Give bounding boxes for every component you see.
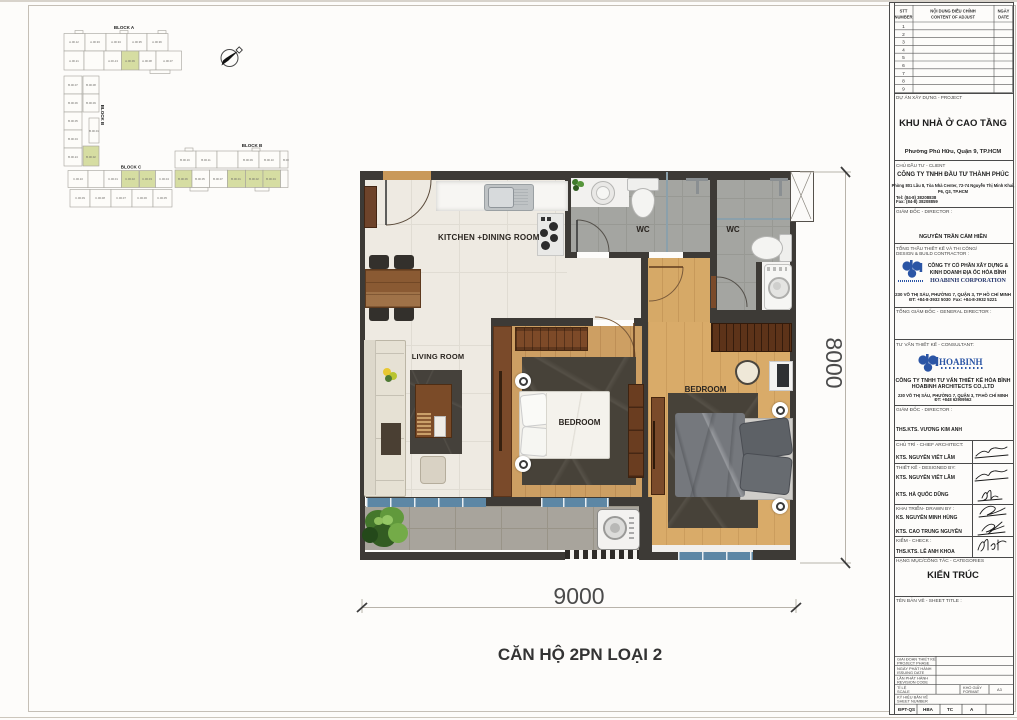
svg-text:4: 4 — [902, 47, 905, 53]
svg-text:NỘI DUNG ĐIỀU CHỈNH: NỘI DUNG ĐIỀU CHỈNH — [930, 9, 976, 14]
svg-text:STT: STT — [899, 9, 907, 14]
svg-text:9: 9 — [902, 86, 905, 92]
svg-text:1: 1 — [902, 24, 905, 30]
svg-text:ISSUING DATE: ISSUING DATE — [897, 670, 925, 675]
svg-text:5: 5 — [902, 55, 905, 61]
svg-text:FORMAT: FORMAT — [963, 689, 980, 694]
svg-text:2: 2 — [902, 32, 905, 38]
svg-text:TC: TC — [947, 707, 954, 712]
svg-text:A3: A3 — [997, 687, 1002, 692]
svg-text:NUMBER: NUMBER — [894, 15, 912, 20]
svg-text:NGÀY: NGÀY — [997, 9, 1009, 14]
svg-text:ĐPT-QS: ĐPT-QS — [898, 707, 915, 712]
svg-text:SHEET NUMBER: SHEET NUMBER — [897, 699, 928, 704]
svg-text:8: 8 — [902, 79, 905, 85]
svg-text:6: 6 — [902, 63, 905, 69]
svg-text:SCALE: SCALE — [897, 689, 910, 694]
svg-text:HBA: HBA — [923, 707, 934, 712]
svg-text:A: A — [970, 707, 974, 712]
svg-text:REVISION CODE: REVISION CODE — [897, 680, 928, 685]
svg-text:DATE: DATE — [998, 15, 1009, 20]
svg-text:7: 7 — [902, 71, 905, 77]
svg-text:3: 3 — [902, 40, 905, 46]
svg-text:CONTENT OF ADJUST: CONTENT OF ADJUST — [931, 15, 975, 20]
